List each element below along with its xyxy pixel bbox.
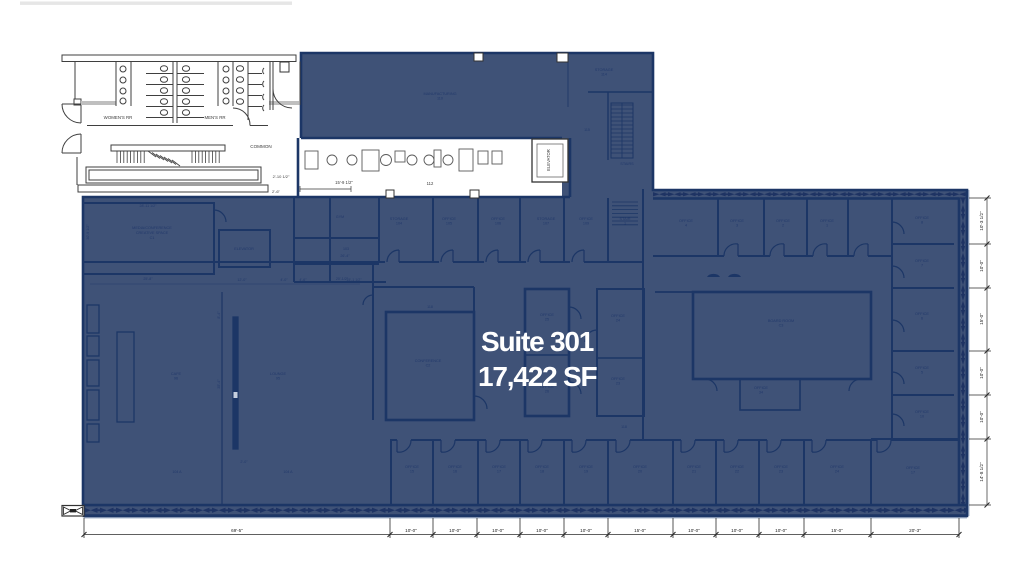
svg-text:OFFICE: OFFICE	[442, 217, 456, 221]
svg-text:COMMON: COMMON	[250, 144, 271, 149]
svg-text:C2: C2	[426, 364, 431, 368]
svg-text:OFFICE: OFFICE	[754, 386, 768, 390]
svg-text:17: 17	[497, 470, 501, 474]
svg-text:STORAGE: STORAGE	[390, 217, 409, 221]
svg-text:23: 23	[779, 470, 783, 474]
svg-text:OFFICE: OFFICE	[915, 366, 929, 370]
svg-text:OFFICE: OFFICE	[448, 465, 462, 469]
svg-text:10'-0": 10'-0"	[979, 260, 984, 272]
svg-text:OFFICE: OFFICE	[540, 313, 554, 317]
svg-text:20'-1/2": 20'-1/2"	[336, 277, 349, 281]
svg-text:OFFICE: OFFICE	[491, 217, 505, 221]
svg-text:20'-3": 20'-3"	[909, 528, 921, 533]
svg-text:114: 114	[601, 73, 607, 77]
svg-text:LOUNGE: LOUNGE	[270, 372, 287, 376]
svg-text:OFFICE: OFFICE	[611, 314, 625, 318]
svg-text:23: 23	[616, 382, 620, 386]
svg-text:95: 95	[276, 377, 280, 381]
svg-text:Suite 301: Suite 301	[481, 326, 594, 357]
svg-text:OFFICE: OFFICE	[820, 219, 834, 223]
svg-text:CREATIVE SPACE: CREATIVE SPACE	[136, 231, 169, 235]
svg-text:15'-1 1/2": 15'-1 1/2"	[346, 278, 362, 282]
svg-text:15: 15	[410, 470, 414, 474]
svg-text:30'-9 1/2": 30'-9 1/2"	[86, 224, 90, 240]
svg-text:104 A: 104 A	[283, 470, 293, 474]
svg-text:112: 112	[427, 181, 434, 186]
svg-text:17: 17	[911, 471, 915, 475]
svg-text:10'-0": 10'-0"	[449, 528, 461, 533]
svg-text:5: 5	[921, 371, 923, 375]
svg-text:4'-0": 4'-0"	[280, 278, 288, 282]
svg-text:15'-0": 15'-0"	[979, 313, 984, 325]
svg-text:2'-6": 2'-6"	[272, 189, 281, 194]
svg-text:OFFICE: OFFICE	[579, 465, 593, 469]
svg-text:STORAGE: STORAGE	[595, 68, 614, 72]
svg-text:28'-11 1/2": 28'-11 1/2"	[140, 204, 158, 208]
svg-text:10'-0": 10'-0"	[405, 528, 417, 533]
svg-text:15'-0": 15'-0"	[831, 528, 843, 533]
svg-text:OFFICE: OFFICE	[915, 216, 929, 220]
svg-text:OFFICE: OFFICE	[774, 465, 788, 469]
svg-text:20: 20	[638, 470, 642, 474]
svg-text:35'-4": 35'-4"	[217, 379, 221, 389]
svg-text:10'-0": 10'-0"	[775, 528, 787, 533]
svg-text:C3: C3	[779, 324, 784, 328]
svg-text:BOARD ROOM: BOARD ROOM	[768, 319, 794, 323]
svg-text:MEDIA/CONFERENCE: MEDIA/CONFERENCE	[132, 226, 172, 230]
svg-text:STORAGE: STORAGE	[537, 217, 556, 221]
svg-text:10'-0": 10'-0"	[979, 367, 984, 379]
svg-text:OFFICE: OFFICE	[730, 465, 744, 469]
svg-text:MANUFACTURING: MANUFACTURING	[423, 92, 456, 96]
svg-text:10'-0": 10'-0"	[580, 528, 592, 533]
svg-text:14'-8 1/2": 14'-8 1/2"	[979, 462, 984, 482]
svg-text:10'-0": 10'-0"	[979, 411, 984, 423]
svg-text:115: 115	[584, 128, 590, 132]
svg-text:10'-0": 10'-0"	[731, 528, 743, 533]
svg-text:26'-4": 26'-4"	[340, 254, 350, 258]
svg-text:104: 104	[396, 222, 402, 226]
svg-text:34: 34	[759, 391, 763, 395]
svg-text:10'-0": 10'-0"	[536, 528, 548, 533]
svg-text:OFFICE: OFFICE	[679, 219, 693, 223]
svg-text:103: 103	[343, 247, 349, 251]
svg-text:C1: C1	[150, 236, 155, 240]
svg-text:3: 3	[736, 224, 738, 228]
svg-text:15'-0": 15'-0"	[634, 528, 646, 533]
svg-text:2'-10 1/2": 2'-10 1/2"	[273, 174, 290, 179]
svg-text:OFFICE: OFFICE	[687, 465, 701, 469]
svg-text:24: 24	[835, 470, 839, 474]
svg-text:106: 106	[495, 222, 501, 226]
svg-text:17,422 SF: 17,422 SF	[478, 361, 597, 392]
svg-text:ELEVATOR: ELEVATOR	[234, 247, 254, 251]
svg-text:12'-0": 12'-0"	[237, 278, 247, 282]
svg-text:OFFICE: OFFICE	[535, 465, 549, 469]
svg-text:OFFICE: OFFICE	[579, 217, 593, 221]
svg-text:105: 105	[446, 222, 452, 226]
svg-text:GYM: GYM	[336, 215, 344, 219]
svg-text:MEN'S RR: MEN'S RR	[204, 115, 225, 120]
svg-text:10: 10	[920, 415, 924, 419]
svg-text:109: 109	[583, 222, 589, 226]
svg-text:118: 118	[427, 305, 433, 309]
svg-text:8'-4": 8'-4"	[217, 311, 221, 319]
svg-text:OFFICE: OFFICE	[776, 219, 790, 223]
svg-text:25: 25	[545, 318, 549, 322]
svg-text:25'-8": 25'-8"	[143, 277, 153, 281]
svg-text:ELEVATOR: ELEVATOR	[546, 149, 551, 171]
svg-text:10'-0": 10'-0"	[492, 528, 504, 533]
svg-text:21: 21	[692, 470, 696, 474]
svg-text:104 A: 104 A	[172, 470, 182, 474]
svg-text:118: 118	[621, 425, 627, 429]
svg-text:OFFICE: OFFICE	[492, 465, 506, 469]
svg-text:15'-9 1/2": 15'-9 1/2"	[335, 180, 353, 185]
svg-text:7: 7	[921, 264, 923, 268]
svg-text:OFFICE: OFFICE	[611, 377, 625, 381]
svg-text:6: 6	[921, 317, 923, 321]
svg-text:10'-3 1/2": 10'-3 1/2"	[979, 211, 984, 231]
svg-text:4'-6": 4'-6"	[299, 278, 307, 282]
svg-text:19: 19	[584, 470, 588, 474]
svg-text:69'-5": 69'-5"	[231, 528, 243, 533]
svg-text:24: 24	[616, 319, 620, 323]
svg-text:OFFICE: OFFICE	[915, 312, 929, 316]
svg-text:OFFICE: OFFICE	[405, 465, 419, 469]
svg-text:107: 107	[543, 222, 549, 226]
svg-text:CAFE: CAFE	[171, 372, 182, 376]
svg-text:OFFICE: OFFICE	[730, 219, 744, 223]
svg-text:96: 96	[174, 377, 178, 381]
svg-text:OFFICE: OFFICE	[915, 410, 929, 414]
svg-text:4: 4	[685, 224, 687, 228]
svg-text:110: 110	[437, 97, 443, 101]
svg-text:OFFICE: OFFICE	[906, 466, 920, 470]
svg-text:2'-0": 2'-0"	[240, 460, 248, 464]
svg-text:1: 1	[624, 222, 626, 226]
svg-text:OFFICE: OFFICE	[915, 259, 929, 263]
svg-text:OFFICE: OFFICE	[633, 465, 647, 469]
svg-text:18: 18	[540, 470, 544, 474]
svg-text:CONFERENCE: CONFERENCE	[415, 359, 442, 363]
svg-text:STAIRS: STAIRS	[620, 162, 634, 166]
svg-text:16: 16	[453, 470, 457, 474]
svg-text:8: 8	[921, 221, 923, 225]
svg-text:10'-0": 10'-0"	[688, 528, 700, 533]
svg-text:22: 22	[735, 470, 739, 474]
svg-text:STAIR: STAIR	[620, 217, 631, 221]
svg-text:2: 2	[782, 224, 784, 228]
svg-text:WOMEN'S RR: WOMEN'S RR	[104, 115, 133, 120]
svg-text:OFFICE: OFFICE	[830, 465, 844, 469]
svg-text:1: 1	[826, 224, 828, 228]
